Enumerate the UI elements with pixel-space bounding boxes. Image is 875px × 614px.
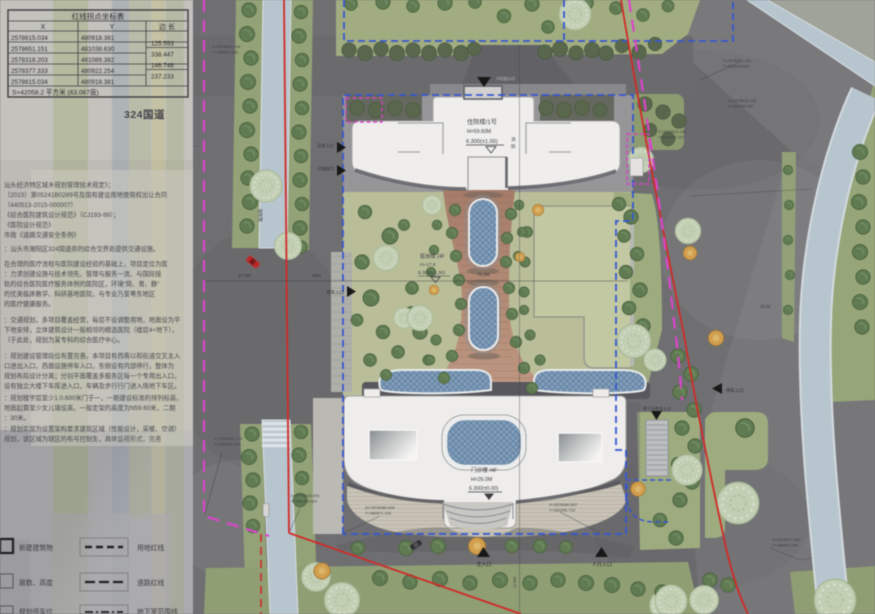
svg-text:新建建筑物: 新建建筑物: [19, 543, 53, 552]
svg-text:237.233: 237.233: [151, 74, 174, 81]
svg-text:污物出口: 污物出口: [317, 165, 334, 172]
svg-text:防: 防: [511, 143, 516, 150]
svg-text:货车入口: 货车入口: [317, 142, 334, 149]
svg-text:X=2578614.130: X=2578614.130: [658, 129, 687, 134]
svg-text:X=2578377.333: X=2578377.333: [772, 537, 801, 542]
svg-text:480918.381: 480918.381: [81, 35, 115, 42]
svg-text:146.746: 146.746: [151, 63, 174, 70]
svg-text:481038.630: 481038.630: [81, 46, 115, 53]
svg-text:6.300(±1.00): 6.300(±1.00): [466, 139, 498, 145]
svg-text:道路红线: 道路红线: [137, 578, 164, 587]
svg-text:338.447: 338.447: [151, 52, 174, 59]
svg-text:75.3M: 75.3M: [477, 272, 490, 277]
svg-text:27.5M: 27.5M: [238, 273, 251, 278]
svg-text:Y=481035.107: Y=481035.107: [658, 135, 685, 140]
svg-text:Y=480945.420: Y=480945.420: [214, 442, 241, 447]
svg-text:X=2578364.179: X=2578364.179: [214, 436, 243, 441]
svg-text:X=2578651.151: X=2578651.151: [723, 58, 752, 63]
svg-text:X: X: [41, 24, 46, 31]
svg-text:福海路: 福海路: [257, 208, 264, 222]
svg-text:主入口: 主入口: [476, 561, 491, 568]
svg-text:Y=480945.424: Y=480945.424: [291, 499, 318, 504]
svg-text:25M: 25M: [312, 273, 321, 278]
svg-text:层数、高度: 层数、高度: [19, 578, 53, 587]
svg-text:人行入口: 人行入口: [592, 561, 612, 568]
svg-text:住院楼/1号: 住院楼/1号: [467, 118, 497, 126]
svg-text:Y=481038.630: Y=481038.630: [723, 64, 750, 69]
svg-text:(X=2578380.639: (X=2578380.639: [365, 505, 395, 510]
svg-text:2578318.203: 2578318.203: [11, 57, 48, 64]
svg-text:H=17.8: H=17.8: [420, 262, 436, 268]
svg-text:Y=480971.224: Y=480971.224: [365, 511, 392, 516]
svg-text:停车入口: 停车入口: [326, 289, 344, 296]
svg-text:门诊楼 /4F: 门诊楼 /4F: [471, 466, 498, 474]
svg-text:X=2578615.034: X=2578615.034: [212, 44, 241, 49]
svg-text:2578651.151: 2578651.151: [11, 46, 48, 53]
svg-text:地下室范围线: 地下室范围线: [137, 607, 178, 614]
svg-text:边 长: 边 长: [159, 22, 175, 31]
svg-text:12.5M: 12.5M: [512, 577, 517, 588]
svg-text:6.300(±1.00): 6.300(±1.00): [418, 270, 446, 276]
svg-text:规划停车位: 规划停车位: [19, 607, 53, 614]
svg-text:H=26.0M: H=26.0M: [471, 477, 492, 483]
svg-text:125.593: 125.593: [151, 41, 174, 48]
svg-text:6.300(±0.00): 6.300(±0.00): [469, 486, 499, 492]
svg-text:X=2578380.637: X=2578380.637: [549, 502, 578, 507]
svg-text:481089.382: 481089.382: [81, 57, 115, 64]
svg-text:S=42058.2 平方米 (63.087亩): S=42058.2 平方米 (63.087亩): [12, 88, 99, 97]
svg-text:消: 消: [511, 136, 516, 143]
svg-text:红线拐点坐标表: 红线拐点坐标表: [72, 11, 125, 21]
svg-text:地下车库出入口: 地下车库出入口: [643, 405, 671, 411]
svg-text:480918.381: 480918.381: [81, 79, 115, 86]
svg-text:X=2578318.203: X=2578318.203: [291, 493, 320, 498]
svg-text:Y=480918.381: Y=480918.381: [212, 50, 239, 55]
svg-text:2578615.034: 2578615.034: [11, 35, 48, 42]
svg-text:X=2578618.130: X=2578618.130: [728, 98, 757, 103]
svg-text:Y: Y: [110, 24, 115, 31]
svg-text:H=59.60M: H=59.60M: [467, 129, 491, 135]
svg-text:医技楼 (4F: 医技楼 (4F: [420, 252, 445, 260]
svg-text:用地红线: 用地红线: [137, 543, 164, 552]
svg-text:人行出入口: 人行出入口: [496, 76, 515, 81]
svg-text:Y=481050.715: Y=481050.715: [549, 508, 576, 513]
svg-text:480922.254: 480922.254: [81, 68, 115, 75]
svg-text:Y=481052.807: Y=481052.807: [728, 104, 755, 109]
svg-text:15 M: 15 M: [760, 304, 770, 309]
svg-text:Y=480922.254: Y=480922.254: [772, 543, 799, 548]
svg-text:停车入口: 停车入口: [726, 387, 744, 394]
svg-text:2578377.333: 2578377.333: [11, 68, 48, 75]
svg-text:2578615.034: 2578615.034: [11, 79, 48, 86]
